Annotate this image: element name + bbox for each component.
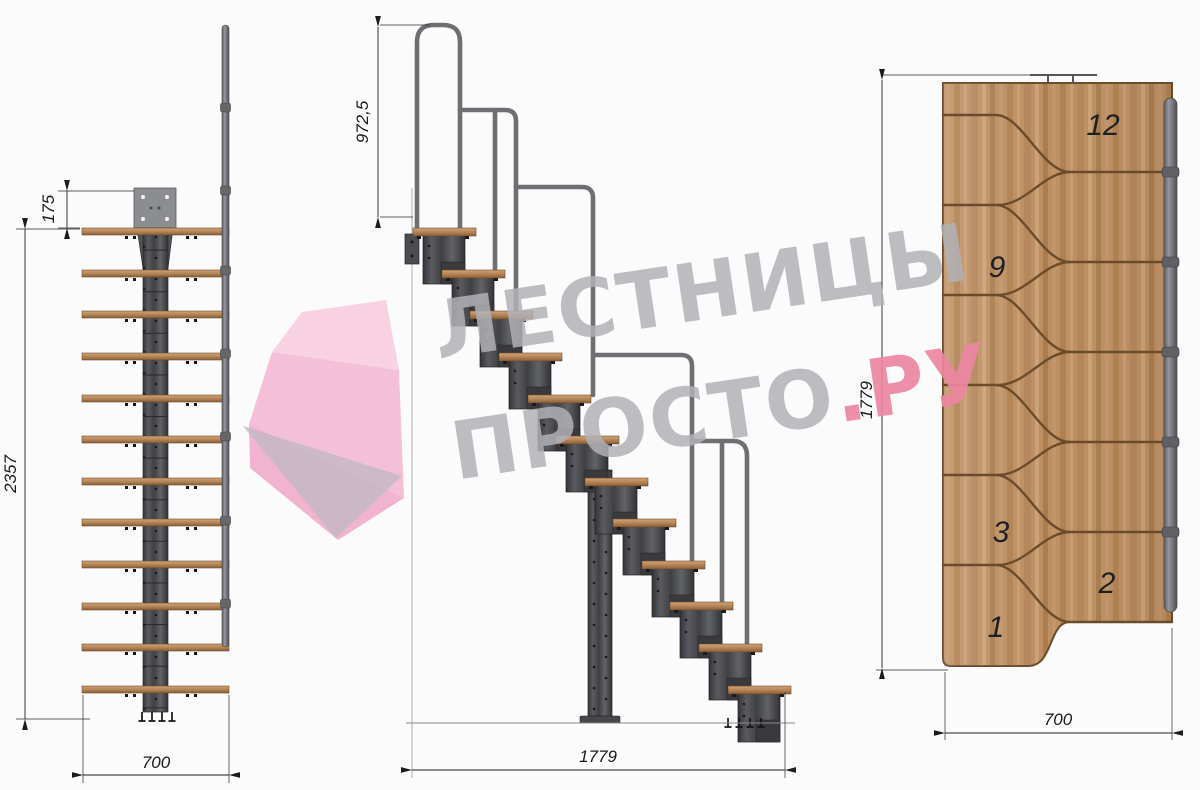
watermark-logo xyxy=(243,300,404,540)
drawing-canvas: 175 2357 700 xyxy=(0,0,1200,790)
dim-2357-label: 2357 xyxy=(1,455,20,494)
step-number-2: 2 xyxy=(1098,567,1116,600)
dimension-total-height: 2357 xyxy=(1,229,90,719)
dim-1779-side-label: 1779 xyxy=(579,747,617,766)
dim-700-plan-label: 700 xyxy=(1044,710,1073,729)
step-number-1: 1 xyxy=(988,611,1005,644)
side-view: 972,5 1779 xyxy=(353,25,795,778)
dimension-plate-offset: 175 xyxy=(39,191,134,228)
plan-handrail xyxy=(1162,98,1179,612)
dim-175-label: 175 xyxy=(39,194,58,223)
dim-1779-plan-label: 1779 xyxy=(857,381,876,419)
step-number-9: 9 xyxy=(989,251,1006,284)
mounting-plate xyxy=(134,188,176,228)
technical-drawing: 175 2357 700 xyxy=(0,0,1200,790)
column-base-plate xyxy=(580,716,620,723)
dim-700-front-label: 700 xyxy=(142,753,171,772)
dim-972-label: 972,5 xyxy=(353,100,372,143)
wall-bracket xyxy=(405,234,419,264)
side-handrail xyxy=(417,25,747,644)
front-handrail-post xyxy=(221,25,231,647)
step-number-3: 3 xyxy=(993,516,1010,549)
front-anchor-bolts xyxy=(139,712,176,721)
plan-view: 12 9 3 2 1 1779 700 xyxy=(857,75,1179,740)
front-column xyxy=(143,230,168,712)
front-view: 175 2357 700 xyxy=(1,25,231,783)
step-number-12: 12 xyxy=(1086,109,1120,142)
